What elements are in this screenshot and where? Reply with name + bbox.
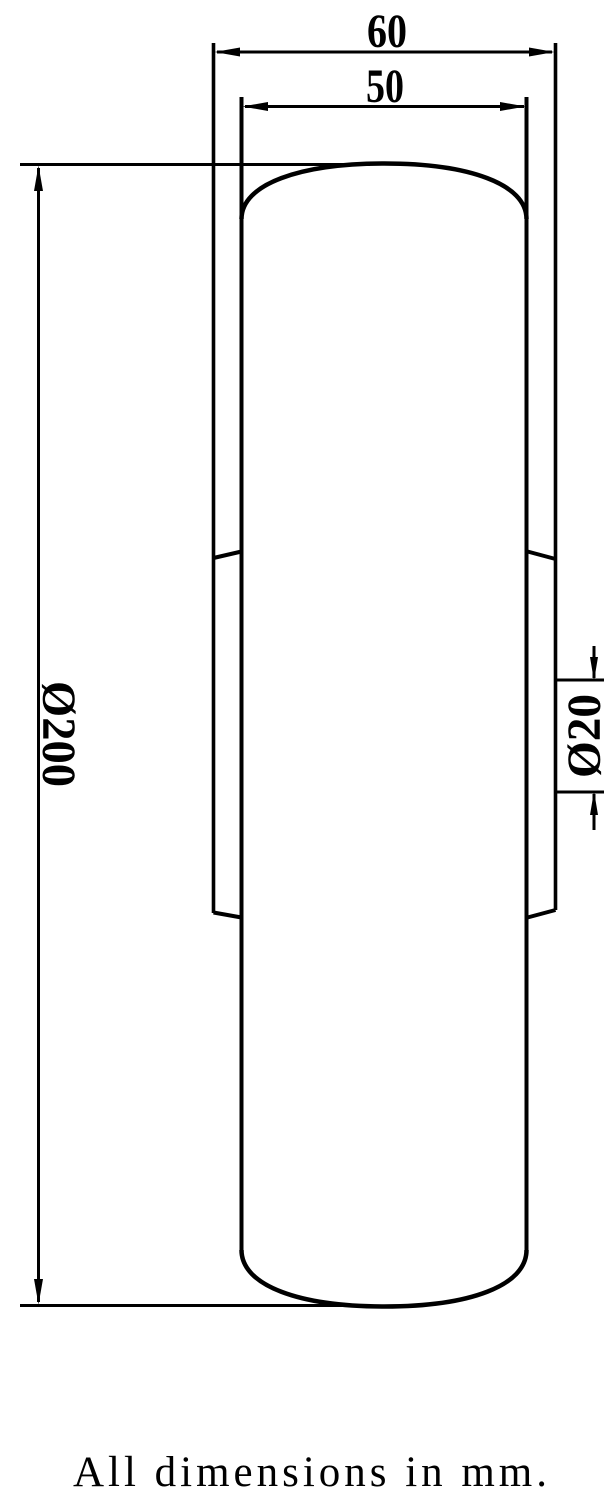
drawing-page: 60 50 Ø200 Ø20 All di <box>0 0 605 1502</box>
dim-60-arrowhead-left-icon <box>215 48 241 57</box>
hub-chamfer-bottom-left <box>214 913 242 918</box>
dimension-tread-width: 50 <box>243 60 526 113</box>
dim-50-arrowhead-right-icon <box>500 102 526 111</box>
tread-crown-arc-bottom <box>242 1250 527 1307</box>
dim-200-arrowhead-top-icon <box>34 166 43 192</box>
dimension-bore-diameter: Ø20 <box>557 646 605 830</box>
dim-60-label: 60 <box>367 5 407 58</box>
dim-50-label: 50 <box>366 60 404 113</box>
dim-50-arrowhead-left-icon <box>243 102 269 111</box>
dim-20-label: Ø20 <box>558 694 605 778</box>
dim-200-arrowhead-bottom-icon <box>34 1279 43 1305</box>
dimension-wheel-diameter: Ø200 <box>20 165 370 1306</box>
hub-chamfer-bottom-right <box>528 910 556 918</box>
dim-200-label: Ø200 <box>32 681 85 787</box>
wheel-outline <box>214 43 556 1307</box>
hub-chamfer-top-right <box>528 552 556 560</box>
tread-crown-arc-top <box>242 164 527 220</box>
wheel-technical-drawing: 60 50 Ø200 Ø20 All di <box>0 0 605 1502</box>
dimension-hub-width: 60 <box>215 5 555 58</box>
hub-chamfer-top-left <box>214 552 242 559</box>
units-note: All dimensions in mm. <box>73 1449 547 1496</box>
dim-60-arrowhead-right-icon <box>529 48 555 57</box>
dim-20-arrowhead-bottom-icon <box>590 791 598 815</box>
dim-20-arrowhead-top-icon <box>590 657 598 681</box>
